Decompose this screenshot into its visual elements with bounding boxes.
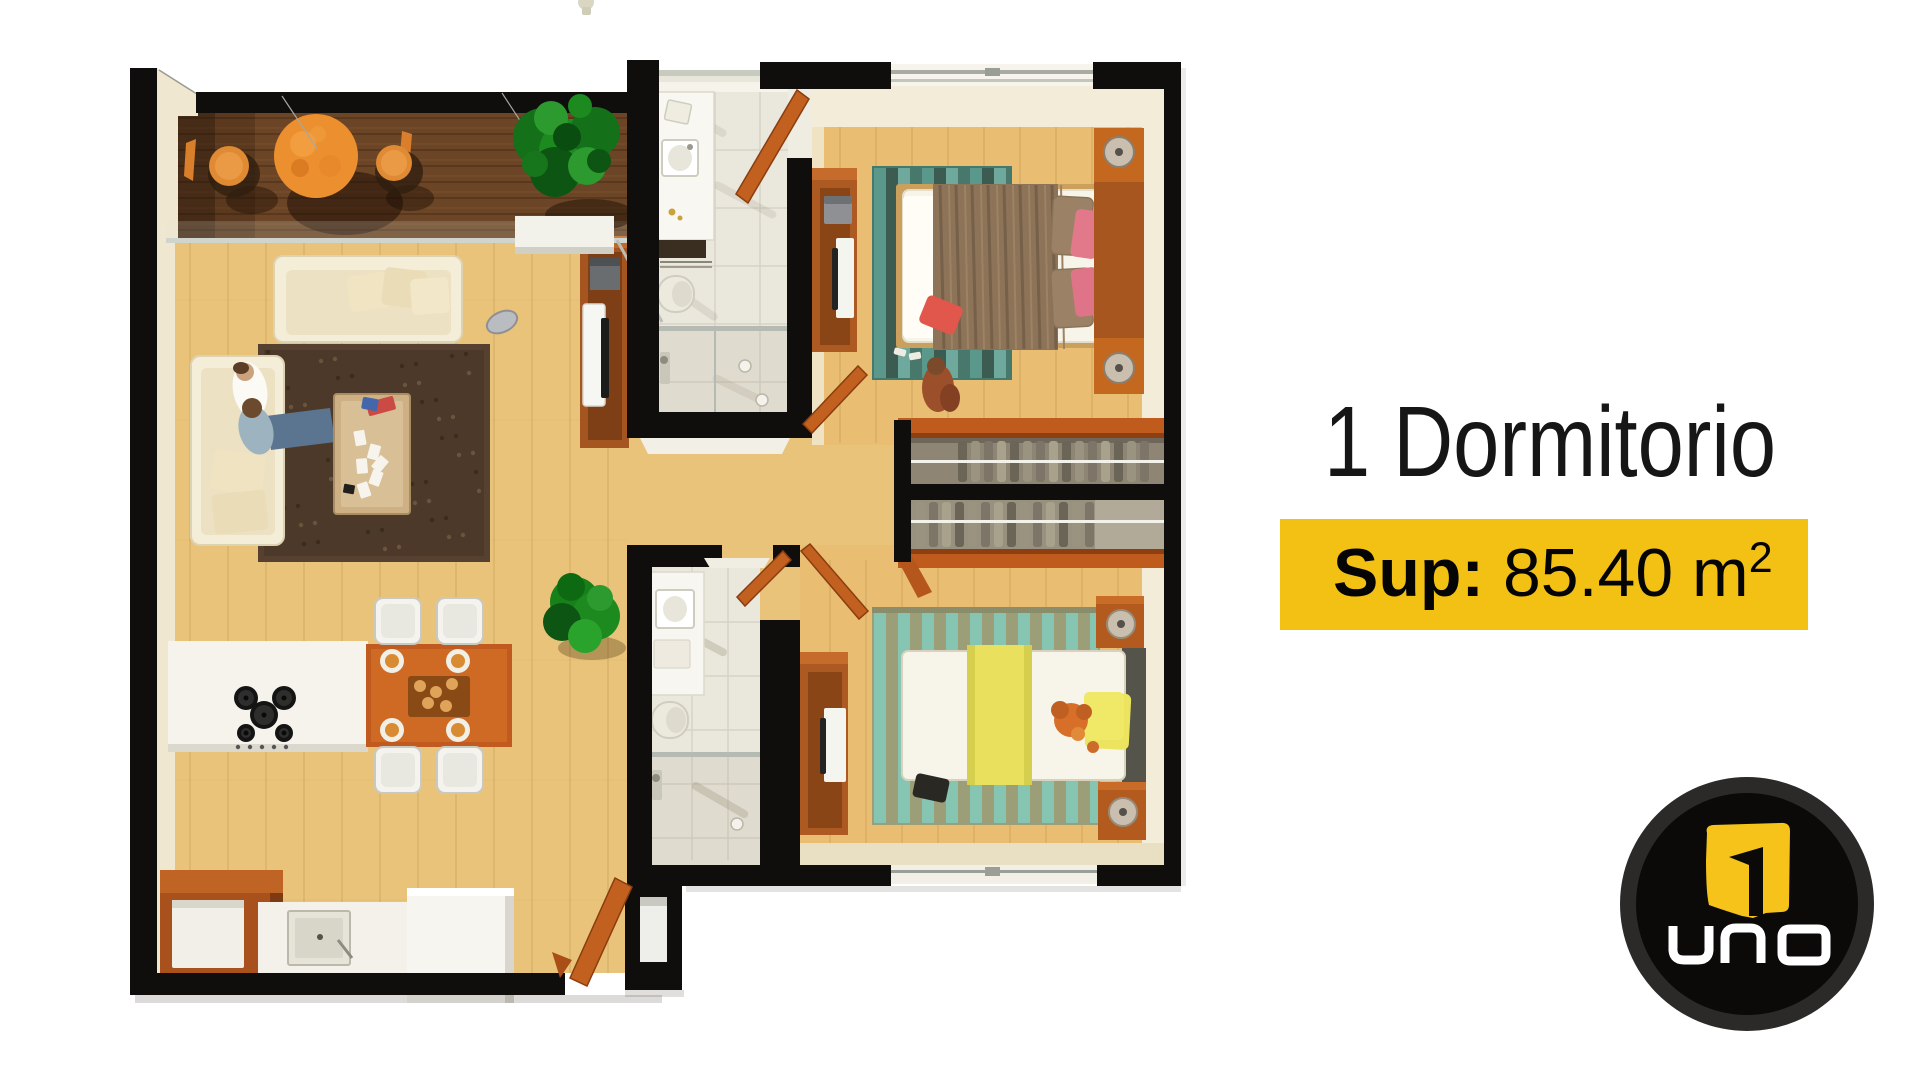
svg-text:Sup: 85.40 m2: Sup: 85.40 m2 bbox=[1333, 534, 1773, 611]
svg-text:1 Dormitorio: 1 Dormitorio bbox=[1324, 386, 1776, 498]
